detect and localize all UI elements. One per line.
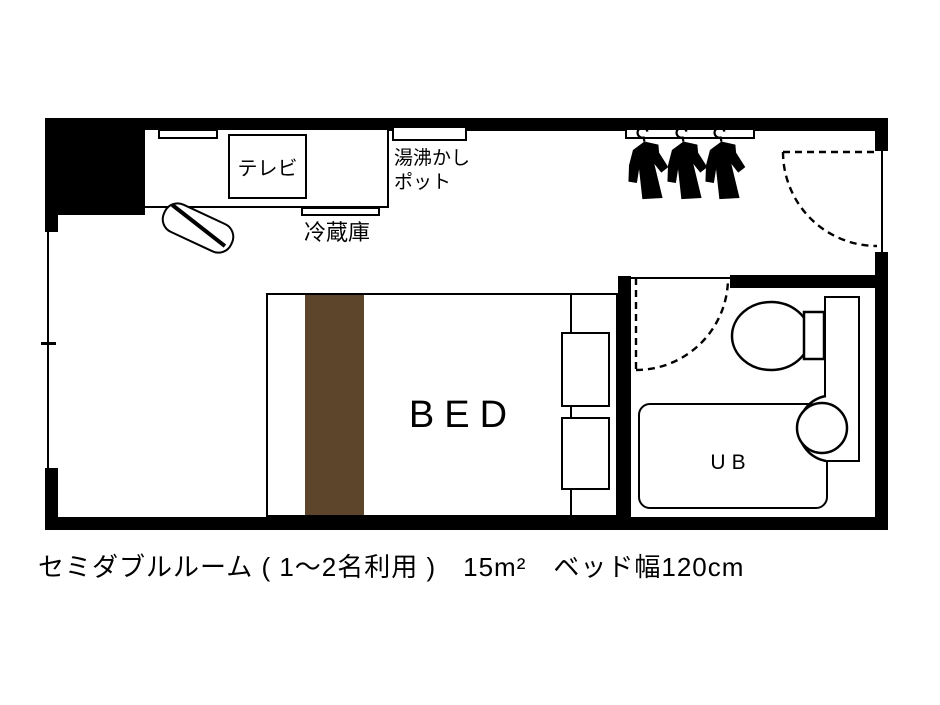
- window-center-tick: [41, 342, 56, 345]
- pillow-top: [561, 332, 610, 407]
- tv-box: テレビ: [228, 134, 307, 199]
- bed-label: BED: [398, 392, 528, 440]
- closet-block: [46, 121, 145, 215]
- tv-label: テレビ: [230, 136, 305, 197]
- room-caption: セミダブルルーム ( 1～2名利用 ) 15m² ベッド幅120cm: [38, 547, 744, 584]
- wall-right-lower: [875, 252, 888, 530]
- wall-bottom: [45, 517, 888, 530]
- bathroom-wall-left: [618, 276, 631, 517]
- bathroom-door-swing: [636, 278, 728, 370]
- kettle-label: 湯沸かし ポット: [394, 147, 504, 195]
- hanger-rail: [625, 128, 755, 139]
- wall-shelf: [158, 129, 218, 139]
- fridge-label: 冷蔵庫: [304, 219, 394, 247]
- bed-runner: [305, 295, 364, 515]
- bathroom-door-lintel: [631, 277, 730, 279]
- entrance-door-swing: [783, 152, 877, 246]
- unit-bath-label: UB: [696, 450, 766, 476]
- wall-left-lower: [45, 468, 58, 530]
- wall-right-upper: [875, 118, 888, 151]
- pillow-bottom: [561, 417, 610, 490]
- entrance-door-frame: [881, 151, 883, 252]
- vanity-counter: [824, 296, 860, 462]
- toilet-icon: [732, 302, 824, 370]
- kettle-shelf: [392, 126, 467, 141]
- window-line: [47, 230, 49, 470]
- fridge-box: [301, 207, 380, 216]
- floor-plan: テレビ 湯沸かし ポット 冷蔵庫 BED UB: [0, 0, 940, 705]
- bathroom-wall-top: [730, 275, 888, 288]
